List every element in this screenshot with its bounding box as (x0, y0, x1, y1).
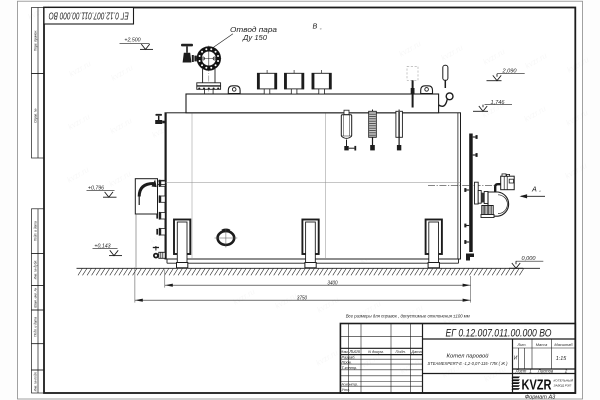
svg-text:Формат А3: Формат А3 (525, 394, 556, 400)
svg-text:KVZR: KVZR (522, 377, 552, 394)
svg-text:КОТЕЛЬНЫЙ: КОТЕЛЬНЫЙ (554, 379, 574, 383)
svg-text:Масса: Масса (536, 342, 548, 347)
svg-text:Масштаб: Масштаб (554, 342, 573, 347)
svg-text:Лист: Лист (348, 349, 360, 354)
svg-text:Инв. № подл.: Инв. № подл. (33, 371, 37, 391)
svg-text:ЗАВОД РЭП: ЗАВОД РЭП (554, 384, 573, 388)
svg-text:Взам. инв. №: Взам. инв. № (33, 287, 37, 307)
svg-text:Ду 150: Ду 150 (242, 33, 268, 42)
svg-text:N докум.: N докум. (368, 349, 384, 354)
svg-text:Подп. и дата: Подп. и дата (33, 221, 37, 241)
svg-text:Листов: Листов (537, 369, 554, 374)
svg-text:1: 1 (529, 369, 531, 374)
svg-text:+2,500: +2,500 (124, 37, 140, 43)
svg-text:Пров.: Пров. (342, 360, 352, 365)
svg-text:В: В (313, 21, 318, 30)
svg-text:Котел паровой: Котел паровой (447, 352, 489, 359)
svg-text:ЕГ 0.12.007.011.00.000 ВО: ЕГ 0.12.007.011.00.000 ВО (446, 328, 552, 340)
svg-text:3750: 3750 (297, 296, 307, 302)
svg-text:+0,796: +0,796 (88, 185, 104, 191)
svg-text:Изм.: Изм. (340, 349, 348, 354)
svg-text:0,000: 0,000 (522, 256, 536, 262)
svg-text:Перв. примен.: Перв. примен. (33, 30, 37, 51)
svg-text:Инв. № дубл.: Инв. № дубл. (33, 260, 37, 280)
svg-text:ЕГ 0.12.007.011.00.000 ВО: ЕГ 0.12.007.011.00.000 ВО (49, 9, 129, 20)
svg-text:1,746: 1,746 (491, 100, 505, 106)
svg-text:+0,143: +0,143 (94, 243, 110, 249)
svg-text:И: И (514, 356, 518, 362)
svg-text:⌀: ⌀ (539, 189, 541, 193)
svg-text:Подп.: Подп. (396, 349, 406, 354)
svg-text:⌀: ⌀ (320, 26, 322, 30)
svg-text:Справ. №: Справ. № (33, 108, 37, 123)
svg-text:STEAMEXPERT-Е -1,2-0,07-115- Г: STEAMEXPERT-Е -1,2-0,07-115- ГЛК ( Ж ) (428, 361, 508, 367)
svg-text:1:15: 1:15 (556, 356, 567, 362)
svg-text:3400: 3400 (327, 281, 337, 287)
svg-text:Все размеры для справок , допу: Все размеры для справок , допустимые отк… (346, 313, 470, 318)
svg-text:2,090: 2,090 (501, 68, 516, 74)
svg-text:Дата: Дата (410, 349, 422, 354)
svg-text:Лист: Лист (515, 369, 527, 374)
svg-text:Лит.: Лит. (516, 342, 526, 347)
svg-text:А: А (531, 184, 537, 193)
svg-text:Подп. и дата: Подп. и дата (33, 317, 37, 337)
svg-text:Утв.: Утв. (342, 387, 351, 392)
svg-text:Т.контр.: Т.контр. (342, 365, 358, 370)
